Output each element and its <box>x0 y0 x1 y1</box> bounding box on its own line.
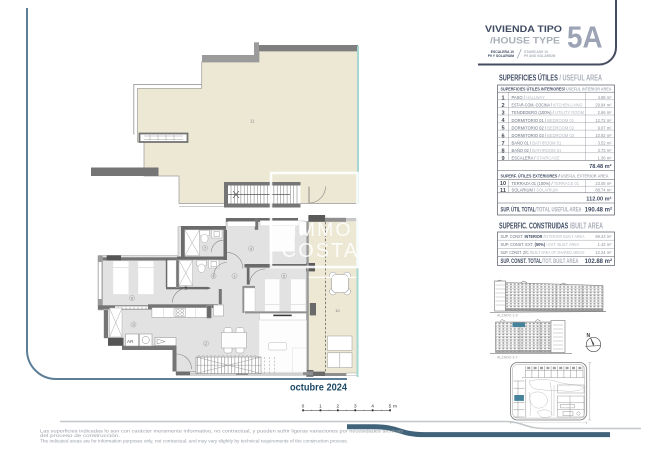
svg-text:88.74 m²: 88.74 m² <box>595 188 612 193</box>
svg-text:23.05 m²: 23.05 m² <box>595 181 612 186</box>
svg-text:78.48 m²: 78.48 m² <box>589 163 612 170</box>
svg-text:1.36 m²: 1.36 m² <box>598 156 613 161</box>
svg-text:P9 AND SOLARIUM: P9 AND SOLARIUM <box>524 54 556 58</box>
svg-text:The indicated areas are for in: The indicated areas are for information … <box>40 439 348 444</box>
svg-text:m: m <box>393 405 397 410</box>
svg-text:1: 1 <box>319 404 322 410</box>
svg-text:del proceso de construcción.: del proceso de construcción. <box>40 433 120 438</box>
svg-text:PASO / HALLWAY: PASO / HALLWAY <box>512 95 546 100</box>
svg-text:4: 4 <box>371 404 374 410</box>
svg-text:IMMO: IMMO <box>291 219 352 241</box>
svg-text:ESCALERA / STAIRCASE: ESCALERA / STAIRCASE <box>512 156 560 161</box>
svg-text:N: N <box>587 333 591 339</box>
svg-text:5: 5 <box>501 126 504 132</box>
svg-text:102.88 m²: 102.88 m² <box>585 258 612 265</box>
svg-text:SUP. CONST. TOTAL/TOT. BUILT A: SUP. CONST. TOTAL/TOT. BUILT AREA <box>501 259 579 265</box>
svg-text:ALZADO 1-9: ALZADO 1-9 <box>497 314 518 318</box>
svg-text:5: 5 <box>283 274 285 278</box>
svg-text:SUPERFICIES ÚTILES INTERIORES/: SUPERFICIES ÚTILES INTERIORES/ USEFUL IN… <box>501 87 612 92</box>
svg-text:12.24 m²: 12.24 m² <box>595 250 612 255</box>
svg-text:6: 6 <box>501 133 504 139</box>
svg-text:4.98 m²: 4.98 m² <box>598 95 613 100</box>
svg-text:SUP. CONST. Z/C /BUILT AREA OF: SUP. CONST. Z/C /BUILT AREA OF SHARED AR… <box>501 250 585 255</box>
svg-text:190.48 m²: 190.48 m² <box>585 207 612 214</box>
svg-text:7: 7 <box>204 246 206 250</box>
svg-text:SUP. ÚTIL TOTAL/TOTAL USEFUL A: SUP. ÚTIL TOTAL/TOTAL USEFUL AREA <box>501 207 582 214</box>
svg-text:DORMITORIO 01 / BEDROOM 01: DORMITORIO 01 / BEDROOM 01 <box>512 118 575 123</box>
svg-text:2: 2 <box>501 103 504 109</box>
svg-text:SOLARIUM / SOLARIUM: SOLARIUM / SOLARIUM <box>512 188 559 193</box>
svg-text:10.92 m²: 10.92 m² <box>595 133 612 138</box>
svg-text:1: 1 <box>233 274 235 278</box>
svg-text:12.72 m²: 12.72 m² <box>595 118 612 123</box>
svg-text:TERRAZA 01 (100%) / TERRACE 01: TERRAZA 01 (100%) / TERRACE 01 <box>512 181 580 186</box>
svg-text:ALZADO 3-7: ALZADO 3-7 <box>497 356 518 360</box>
svg-text:8: 8 <box>212 274 214 278</box>
svg-text:ESTAR-COM.-COCINA / KITCHEN-LI: ESTAR-COM.-COCINA / KITCHEN-LIVING <box>512 103 583 108</box>
svg-text:/HOUSE TYPE: /HOUSE TYPE <box>490 36 560 47</box>
svg-text:SUP. CONST. INTERIOR /INTERIOR: SUP. CONST. INTERIOR /INTERIOR BUILT ARE… <box>501 234 585 239</box>
svg-text:3: 3 <box>132 323 134 327</box>
svg-text:89.23 m²: 89.23 m² <box>595 234 612 239</box>
svg-text:3: 3 <box>501 111 504 117</box>
svg-text:DORMITORIO 03 / BEDROOM 03: DORMITORIO 03 / BEDROOM 03 <box>512 133 575 138</box>
svg-text:10: 10 <box>335 309 339 313</box>
svg-text:11: 11 <box>250 119 255 124</box>
svg-text:3.52 m²: 3.52 m² <box>598 141 613 146</box>
svg-text:P9 Y SOLARIUM: P9 Y SOLARIUM <box>488 54 514 58</box>
svg-text:1: 1 <box>501 96 504 102</box>
svg-text:29.84 m²: 29.84 m² <box>595 103 612 108</box>
svg-text:3: 3 <box>354 404 357 410</box>
svg-text:7: 7 <box>501 141 504 147</box>
svg-text:2: 2 <box>205 342 207 346</box>
svg-text:VIVIENDA TIPO: VIVIENDA TIPO <box>485 24 562 35</box>
svg-text:DORMITORIO 02 / BEDROOM 02: DORMITORIO 02 / BEDROOM 02 <box>512 125 575 130</box>
svg-text:9.07 m²: 9.07 m² <box>598 125 613 130</box>
svg-text:ESCALERA 10: ESCALERA 10 <box>491 50 514 54</box>
svg-text:5: 5 <box>389 404 392 410</box>
svg-text:3.73 m²: 3.73 m² <box>598 148 613 153</box>
svg-text:4: 4 <box>250 247 252 251</box>
svg-text:SUPERF. ÚTILES EXTERIORES / US: SUPERF. ÚTILES EXTERIORES / USEFUL EXTER… <box>501 172 610 178</box>
svg-text:SUPERFIC. CONSTRUIDAS /BUILT A: SUPERFIC. CONSTRUIDAS /BUILT AREA <box>499 222 603 231</box>
svg-text:6: 6 <box>131 296 133 300</box>
svg-text:0: 0 <box>302 404 305 410</box>
svg-text:octubre 2024: octubre 2024 <box>290 383 347 394</box>
svg-text:8: 8 <box>501 148 504 154</box>
svg-text:AR: AR <box>127 339 134 344</box>
svg-text:COSTA: COSTA <box>282 240 359 262</box>
svg-text:TENDEDERO (100%) / UTILITY ROO: TENDEDERO (100%) / UTILITY ROOM <box>512 110 585 115</box>
svg-text:2.66 m²: 2.66 m² <box>598 110 613 115</box>
svg-text:SUP. CONST. EXT. (50%) / EXT.: SUP. CONST. EXT. (50%) / EXT. BUILT AREA <box>501 242 580 247</box>
svg-text:STAIRCASE 10: STAIRCASE 10 <box>524 50 548 54</box>
svg-text:5A: 5A <box>567 20 603 55</box>
svg-text:BAÑO 01 / BATHROOM 01: BAÑO 01 / BATHROOM 01 <box>512 141 562 146</box>
svg-text:SUPERFICIES ÚTILES / USEFUL AR: SUPERFICIES ÚTILES / USEFUL AREA <box>499 74 602 83</box>
svg-text:BAÑO 02 / BATHROOM 01: BAÑO 02 / BATHROOM 01 <box>512 148 562 153</box>
svg-text:1.42 m²: 1.42 m² <box>598 242 613 247</box>
svg-text:9: 9 <box>501 156 504 162</box>
svg-text:2: 2 <box>336 404 339 410</box>
svg-text:112.00 m²: 112.00 m² <box>586 196 611 203</box>
